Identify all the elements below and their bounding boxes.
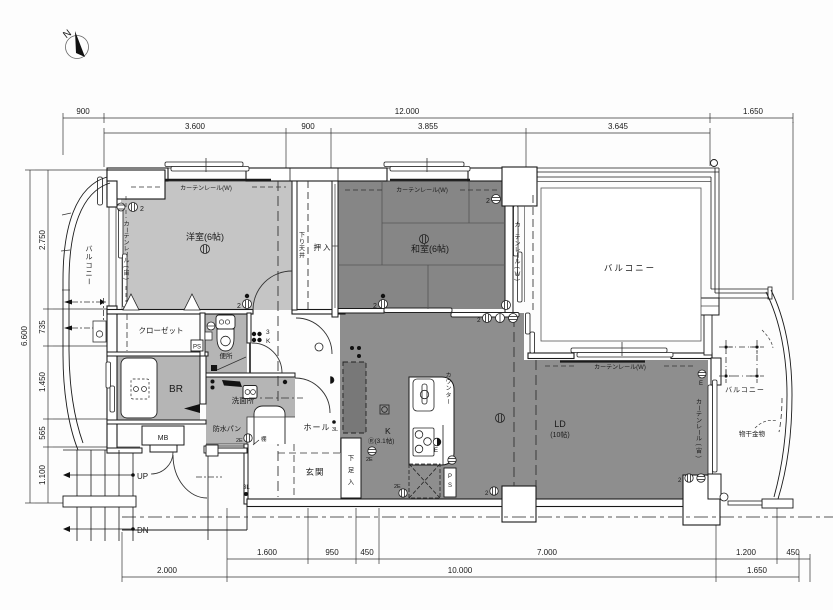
- svg-text:ニ: ニ: [86, 271, 93, 278]
- svg-text:カーテンレール(W): カーテンレール(W): [180, 185, 232, 192]
- svg-text:2.750: 2.750: [38, 229, 47, 250]
- svg-text:コ: コ: [86, 261, 93, 269]
- svg-text:ル: ル: [86, 254, 93, 261]
- svg-text:(: (: [122, 266, 128, 268]
- svg-text:入: 入: [348, 479, 355, 486]
- svg-text:PS: PS: [193, 345, 201, 351]
- svg-text:テ: テ: [514, 234, 520, 241]
- svg-text:2: 2: [477, 317, 481, 324]
- svg-text:1.650: 1.650: [747, 566, 768, 575]
- svg-text:り: り: [299, 239, 305, 246]
- svg-text:K: K: [266, 338, 271, 345]
- svg-text:カ: カ: [446, 372, 452, 379]
- svg-text:): ): [513, 279, 519, 281]
- svg-text:棚: 棚: [212, 364, 218, 372]
- svg-text:下: 下: [348, 454, 355, 462]
- svg-text:ー: ー: [85, 278, 92, 285]
- svg-text:ー: ー: [695, 429, 701, 435]
- svg-text:3L: 3L: [332, 427, 338, 433]
- svg-text:3.600: 3.600: [185, 122, 206, 131]
- svg-text:2.000: 2.000: [157, 566, 178, 575]
- svg-text:ー: ー: [695, 405, 701, 411]
- svg-text:2: 2: [373, 303, 377, 310]
- svg-text:2E: 2E: [394, 484, 401, 490]
- svg-text:ー: ー: [513, 252, 519, 258]
- svg-text:K: K: [385, 426, 391, 436]
- svg-text:1.100: 1.100: [38, 464, 47, 485]
- svg-text:洋室(6帖): 洋室(6帖): [186, 231, 224, 242]
- svg-text:ル: ル: [123, 259, 129, 265]
- svg-text:UP: UP: [137, 472, 148, 481]
- svg-text:12.000: 12.000: [395, 107, 420, 116]
- svg-text:450: 450: [786, 548, 800, 557]
- svg-text:テ: テ: [696, 411, 702, 418]
- svg-text:ー: ー: [513, 228, 519, 234]
- svg-text:W: W: [515, 272, 521, 278]
- svg-text:井: 井: [299, 251, 305, 259]
- svg-text:10.000: 10.000: [448, 566, 473, 575]
- svg-text:下: 下: [299, 232, 305, 239]
- svg-text:2E: 2E: [366, 457, 373, 463]
- svg-text:2: 2: [237, 303, 241, 310]
- svg-text:S: S: [448, 483, 452, 489]
- svg-text:バ: バ: [86, 245, 93, 253]
- svg-text:(: (: [695, 444, 701, 446]
- svg-text:宙: 宙: [123, 269, 129, 277]
- svg-text:防水パン: 防水パン: [213, 424, 241, 433]
- svg-text:棚: 棚: [261, 435, 267, 443]
- svg-text:便所: 便所: [220, 351, 234, 360]
- svg-text:カーテンレール(W): カーテンレール(W): [594, 364, 646, 371]
- svg-text:6.600: 6.600: [20, 325, 29, 346]
- svg-text:950: 950: [325, 548, 339, 557]
- svg-text:ル: ル: [696, 437, 702, 443]
- svg-text:3: 3: [266, 329, 270, 336]
- svg-text:2E: 2E: [236, 438, 243, 444]
- svg-text:BR: BR: [169, 384, 183, 395]
- svg-text:DN: DN: [137, 526, 149, 535]
- svg-text:クローゼット: クローゼット: [139, 325, 184, 335]
- svg-text:バルコニー: バルコニー: [604, 263, 656, 273]
- svg-text:7.000: 7.000: [537, 548, 558, 557]
- svg-text:E: E: [434, 448, 438, 454]
- svg-text:2: 2: [140, 206, 144, 213]
- svg-text:1.200: 1.200: [736, 548, 757, 557]
- svg-text:3L: 3L: [243, 485, 250, 491]
- svg-text:3.645: 3.645: [608, 122, 629, 131]
- svg-text:ー: ー: [122, 227, 128, 233]
- svg-text:(10帖): (10帖): [550, 430, 569, 439]
- svg-text:玄関: 玄関: [305, 467, 324, 477]
- svg-text:バルコニー: バルコニー: [725, 386, 765, 394]
- svg-text:宙: 宙: [696, 447, 702, 455]
- svg-text:ウ: ウ: [446, 378, 452, 386]
- svg-text:LD: LD: [554, 419, 566, 429]
- svg-text:P: P: [448, 474, 452, 480]
- svg-text:ン: ン: [123, 240, 129, 246]
- svg-text:Ⓡ(3.1帖): Ⓡ(3.1帖): [368, 436, 394, 445]
- svg-text:ル: ル: [514, 260, 520, 266]
- svg-text:天: 天: [299, 246, 305, 253]
- svg-text:450: 450: [360, 548, 374, 557]
- svg-text:物干金物: 物干金物: [739, 429, 766, 438]
- svg-text:ン: ン: [446, 386, 452, 392]
- svg-text:565: 565: [38, 426, 47, 440]
- svg-text:ー: ー: [122, 251, 128, 257]
- svg-text:ー: ー: [445, 398, 451, 404]
- svg-text:(: (: [513, 267, 519, 269]
- svg-text:): ): [122, 278, 128, 280]
- svg-text:ン: ン: [696, 418, 702, 424]
- svg-text:足: 足: [348, 466, 355, 474]
- svg-text:): ): [695, 456, 701, 458]
- svg-text:ホール: ホール: [304, 423, 331, 432]
- svg-text:900: 900: [76, 107, 90, 116]
- svg-text:3.855: 3.855: [418, 122, 439, 131]
- svg-text:1.450: 1.450: [38, 371, 47, 392]
- svg-text:E: E: [699, 381, 703, 387]
- svg-text:2: 2: [486, 198, 490, 205]
- svg-text:1.650: 1.650: [743, 107, 764, 116]
- svg-text:カーテンレール(W): カーテンレール(W): [396, 187, 448, 194]
- svg-text:ン: ン: [514, 241, 520, 247]
- svg-text:900: 900: [301, 122, 315, 131]
- svg-text:押 入: 押 入: [313, 242, 331, 252]
- svg-text:和室(6帖): 和室(6帖): [411, 243, 449, 254]
- svg-text:テ: テ: [123, 233, 129, 240]
- svg-text:1.600: 1.600: [257, 548, 278, 557]
- svg-text:735: 735: [38, 320, 47, 334]
- svg-text:MB: MB: [158, 435, 169, 442]
